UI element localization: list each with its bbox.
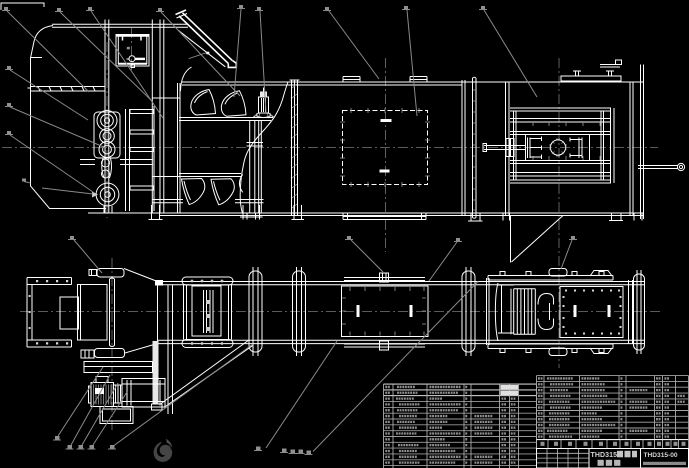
svg-text:THD315: THD315 bbox=[591, 452, 618, 459]
svg-text:THD315-00: THD315-00 bbox=[644, 452, 678, 459]
